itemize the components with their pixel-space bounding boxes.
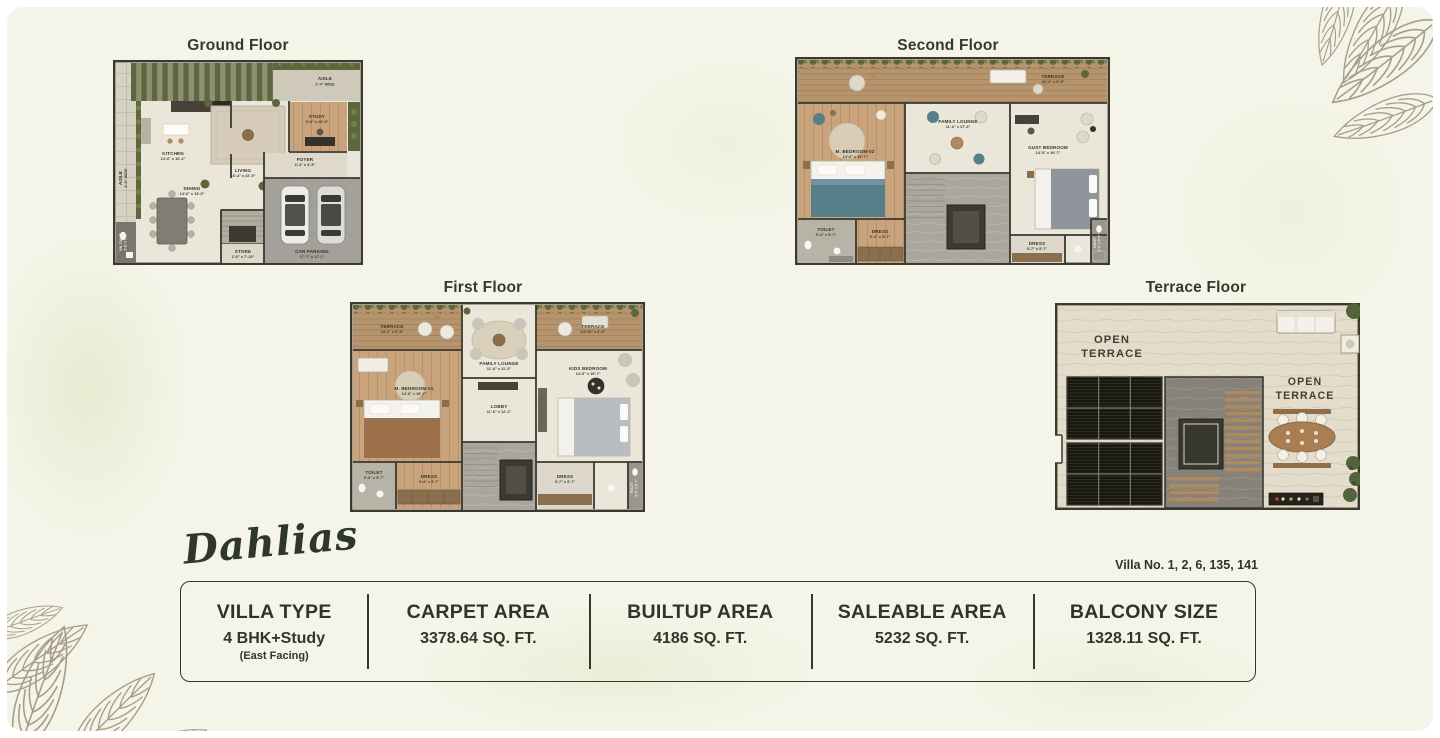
second-terrace-label: TERRACE <box>1041 74 1064 79</box>
ground-dining-label: DINING <box>184 186 201 191</box>
spec-label: VILLA TYPE <box>181 601 367 624</box>
brochure-page: Ground Floor Second Floor First Floor Te… <box>0 0 1440 738</box>
villa-name-script: Dahlias <box>181 511 360 573</box>
first-dress-left-label: DRESS <box>421 474 438 479</box>
second-mbedroom-label: M. BEDROOM-02 <box>836 149 875 154</box>
ground-pwtoilet-label: PW. TOILET <box>119 233 123 251</box>
first-terrace-right-label: TERRACE <box>581 324 604 329</box>
second-floor-plan: TERRACE 26'-4" x 6'-5" M. BEDROOM-02 14'… <box>795 57 1110 265</box>
staircase <box>221 210 264 244</box>
spec-villa-type: VILLA TYPE 4 BHK+Study (East Facing) <box>181 582 367 681</box>
first-toilet-label: TOILET <box>365 470 382 475</box>
svg-text:16'-4" x 22'-9": 16'-4" x 22'-9" <box>231 174 256 178</box>
svg-text:3'-6" x 7'-2": 3'-6" x 7'-2" <box>124 233 128 251</box>
svg-text:9'-6" x 5'-7": 9'-6" x 5'-7" <box>1098 234 1102 252</box>
svg-text:5'-7" x 5'-7": 5'-7" x 5'-7" <box>555 480 576 484</box>
terrace-floor-title: Terrace Floor <box>1076 279 1316 297</box>
second-guest-label: GUST BEDROOM <box>1028 145 1068 150</box>
svg-text:14'-6" x 19'-7": 14'-6" x 19'-7" <box>843 155 868 159</box>
spec-label: CARPET AREA <box>367 601 589 624</box>
specification-table: VILLA TYPE 4 BHK+Study (East Facing) CAR… <box>180 581 1256 682</box>
ground-store-label: STORE <box>235 249 252 254</box>
svg-text:TERRACE: TERRACE <box>1081 348 1143 360</box>
dress-left <box>856 219 905 263</box>
second-dress-right-label: DRESS <box>1029 241 1046 246</box>
svg-text:17'-7" x 17'-1": 17'-7" x 17'-1" <box>300 255 325 259</box>
first-toilet-right-label: TOILET <box>630 482 634 493</box>
svg-text:2'-4" WIDE: 2'-4" WIDE <box>315 83 335 87</box>
ground-floor-plan: AISLE 2'-4" WIDE AISLE 4'-0" WIDE KITCHE… <box>113 60 363 265</box>
spec-balcony-size: BALCONY SIZE 1328.11 SQ. FT. <box>1033 582 1255 681</box>
page-background: Ground Floor Second Floor First Floor Te… <box>7 7 1433 731</box>
spec-carpet-area: CARPET AREA 3378.64 SQ. FT. <box>367 582 589 681</box>
staircase <box>462 442 536 510</box>
dress-left <box>396 462 462 509</box>
terrace-open-right-label: OPEN <box>1288 376 1322 388</box>
car <box>281 186 309 244</box>
spec-value: 3378.64 SQ. FT. <box>367 630 589 648</box>
second-floor-title: Second Floor <box>828 37 1068 55</box>
spec-value: 4 BHK+Study <box>181 630 367 648</box>
spec-builtup-area: BUILTUP AREA 4186 SQ. FT. <box>589 582 811 681</box>
svg-text:11'-6" x 17'-4": 11'-6" x 17'-4" <box>946 125 971 129</box>
terrace-floor-plan: OPEN TERRACE OPEN TERRACE <box>1055 303 1360 510</box>
lift <box>1179 419 1223 469</box>
spec-label: BALCONY SIZE <box>1033 601 1255 624</box>
staircase <box>905 173 1010 263</box>
svg-text:14'-6" x 13'-5": 14'-6" x 13'-5" <box>180 192 205 196</box>
svg-text:4'-0" WIDE: 4'-0" WIDE <box>124 168 128 188</box>
svg-text:14'-10" x 6'-5": 14'-10" x 6'-5" <box>581 330 606 334</box>
toilet-left <box>798 219 856 263</box>
dress-right <box>536 462 594 509</box>
spec-note: (East Facing) <box>181 650 367 662</box>
ground-parking-label: CAR PARKING <box>295 249 329 254</box>
ground-study-label: STUDY <box>309 114 325 119</box>
first-mbedroom-label: M. BEDROOM-01 <box>395 386 434 391</box>
spec-label: BUILTUP AREA <box>589 601 811 624</box>
svg-text:14'-5" x 19'-7": 14'-5" x 19'-7" <box>576 372 601 376</box>
second-dress-left-label: DRESS <box>872 229 889 234</box>
spec-value: 4186 SQ. FT. <box>589 630 811 648</box>
first-floor-plan: TERRACE 13'-2" x 6'-5" FAMILY LOUNGE 11'… <box>350 302 645 512</box>
spec-value: 5232 SQ. FT. <box>811 630 1033 648</box>
second-toilet-right-label: TOILET <box>1093 237 1097 248</box>
outdoor-dining-set <box>1269 409 1335 468</box>
svg-text:13'-2" x 6'-5": 13'-2" x 6'-5" <box>381 330 404 334</box>
svg-text:9'-6" x 5'-7": 9'-6" x 5'-7" <box>635 479 639 497</box>
svg-text:11'-6" x 11'-2": 11'-6" x 11'-2" <box>487 367 512 371</box>
svg-text:6'-4" x 4'-5": 6'-4" x 4'-5" <box>295 163 316 167</box>
second-toilet-label: TOILET <box>817 227 834 232</box>
spec-label: SALEABLE AREA <box>811 601 1033 624</box>
first-kids-label: KIDS BEDROOM <box>569 366 607 371</box>
ground-aisle-left-label: AISLE <box>118 171 123 185</box>
lobby-console <box>478 382 518 390</box>
ground-kitchen-label: KITCHEN <box>162 151 184 156</box>
svg-text:9'-4" x 5'-7": 9'-4" x 5'-7" <box>419 480 440 484</box>
svg-text:26'-4" x 6'-5": 26'-4" x 6'-5" <box>1042 80 1065 84</box>
svg-text:2'-6" x 7'-10": 2'-6" x 7'-10" <box>232 255 255 259</box>
spec-value: 1328.11 SQ. FT. <box>1033 630 1255 648</box>
second-lounge-label: FAMILY LOUNGE <box>938 119 977 124</box>
villa-numbers: Villa No. 1, 2, 6, 135, 141 <box>1000 558 1258 572</box>
ground-aisle-top-label: AISLE <box>318 76 332 81</box>
svg-text:14'-6" x 16'-2": 14'-6" x 16'-2" <box>161 157 186 161</box>
first-terrace-left-label: TERRACE <box>380 324 403 329</box>
bbq-counter <box>1269 493 1323 505</box>
svg-text:9'-6" x 10'-0": 9'-6" x 10'-0" <box>306 120 329 124</box>
svg-text:14'-5" x 19'-7": 14'-5" x 19'-7" <box>1036 151 1061 155</box>
car <box>317 186 345 244</box>
first-dress-right-label: DRESS <box>557 474 574 479</box>
svg-text:9'-6" x 5'-7": 9'-6" x 5'-7" <box>364 476 385 480</box>
svg-text:9'-4" x 5'-7": 9'-4" x 5'-7" <box>870 235 891 239</box>
ground-living-label: LIVING <box>235 168 251 173</box>
terrace-open-left-label: OPEN <box>1094 334 1130 346</box>
leaf-art-top-right <box>1249 7 1433 201</box>
svg-text:TERRACE: TERRACE <box>1276 390 1335 402</box>
svg-text:11'-6" x 12'-2": 11'-6" x 12'-2" <box>487 410 512 414</box>
ground-floor-title: Ground Floor <box>118 37 358 55</box>
svg-text:14'-6" x 19'-7": 14'-6" x 19'-7" <box>402 392 427 396</box>
first-lounge-label: FAMILY LOUNGE <box>479 361 518 366</box>
study-furniture <box>290 102 360 151</box>
staircase <box>1165 377 1263 508</box>
ground-foyer-label: FOYER <box>297 157 314 162</box>
first-lobby-label: LOBBY <box>491 404 508 409</box>
first-floor-title: First Floor <box>363 279 603 297</box>
svg-text:5'-7" x 5'-7": 5'-7" x 5'-7" <box>1027 247 1048 251</box>
svg-text:9'-4" x 5'-7": 9'-4" x 5'-7" <box>816 233 837 237</box>
spec-saleable-area: SALEABLE AREA 5232 SQ. FT. <box>811 582 1033 681</box>
